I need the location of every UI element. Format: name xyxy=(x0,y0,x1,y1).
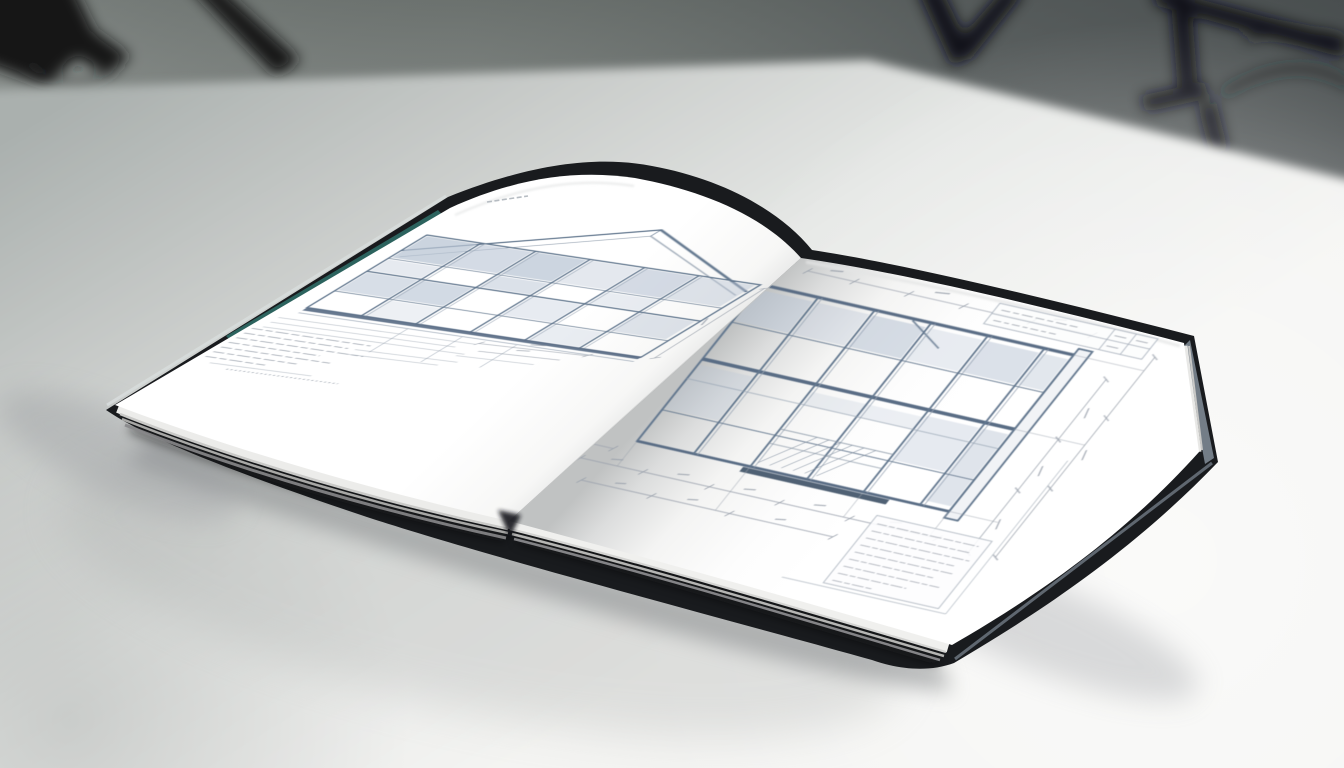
photo-stage: Two-storey building elevation/section wi… xyxy=(0,0,1344,768)
book-photograph: Two-storey building elevation/section wi… xyxy=(0,0,1344,768)
